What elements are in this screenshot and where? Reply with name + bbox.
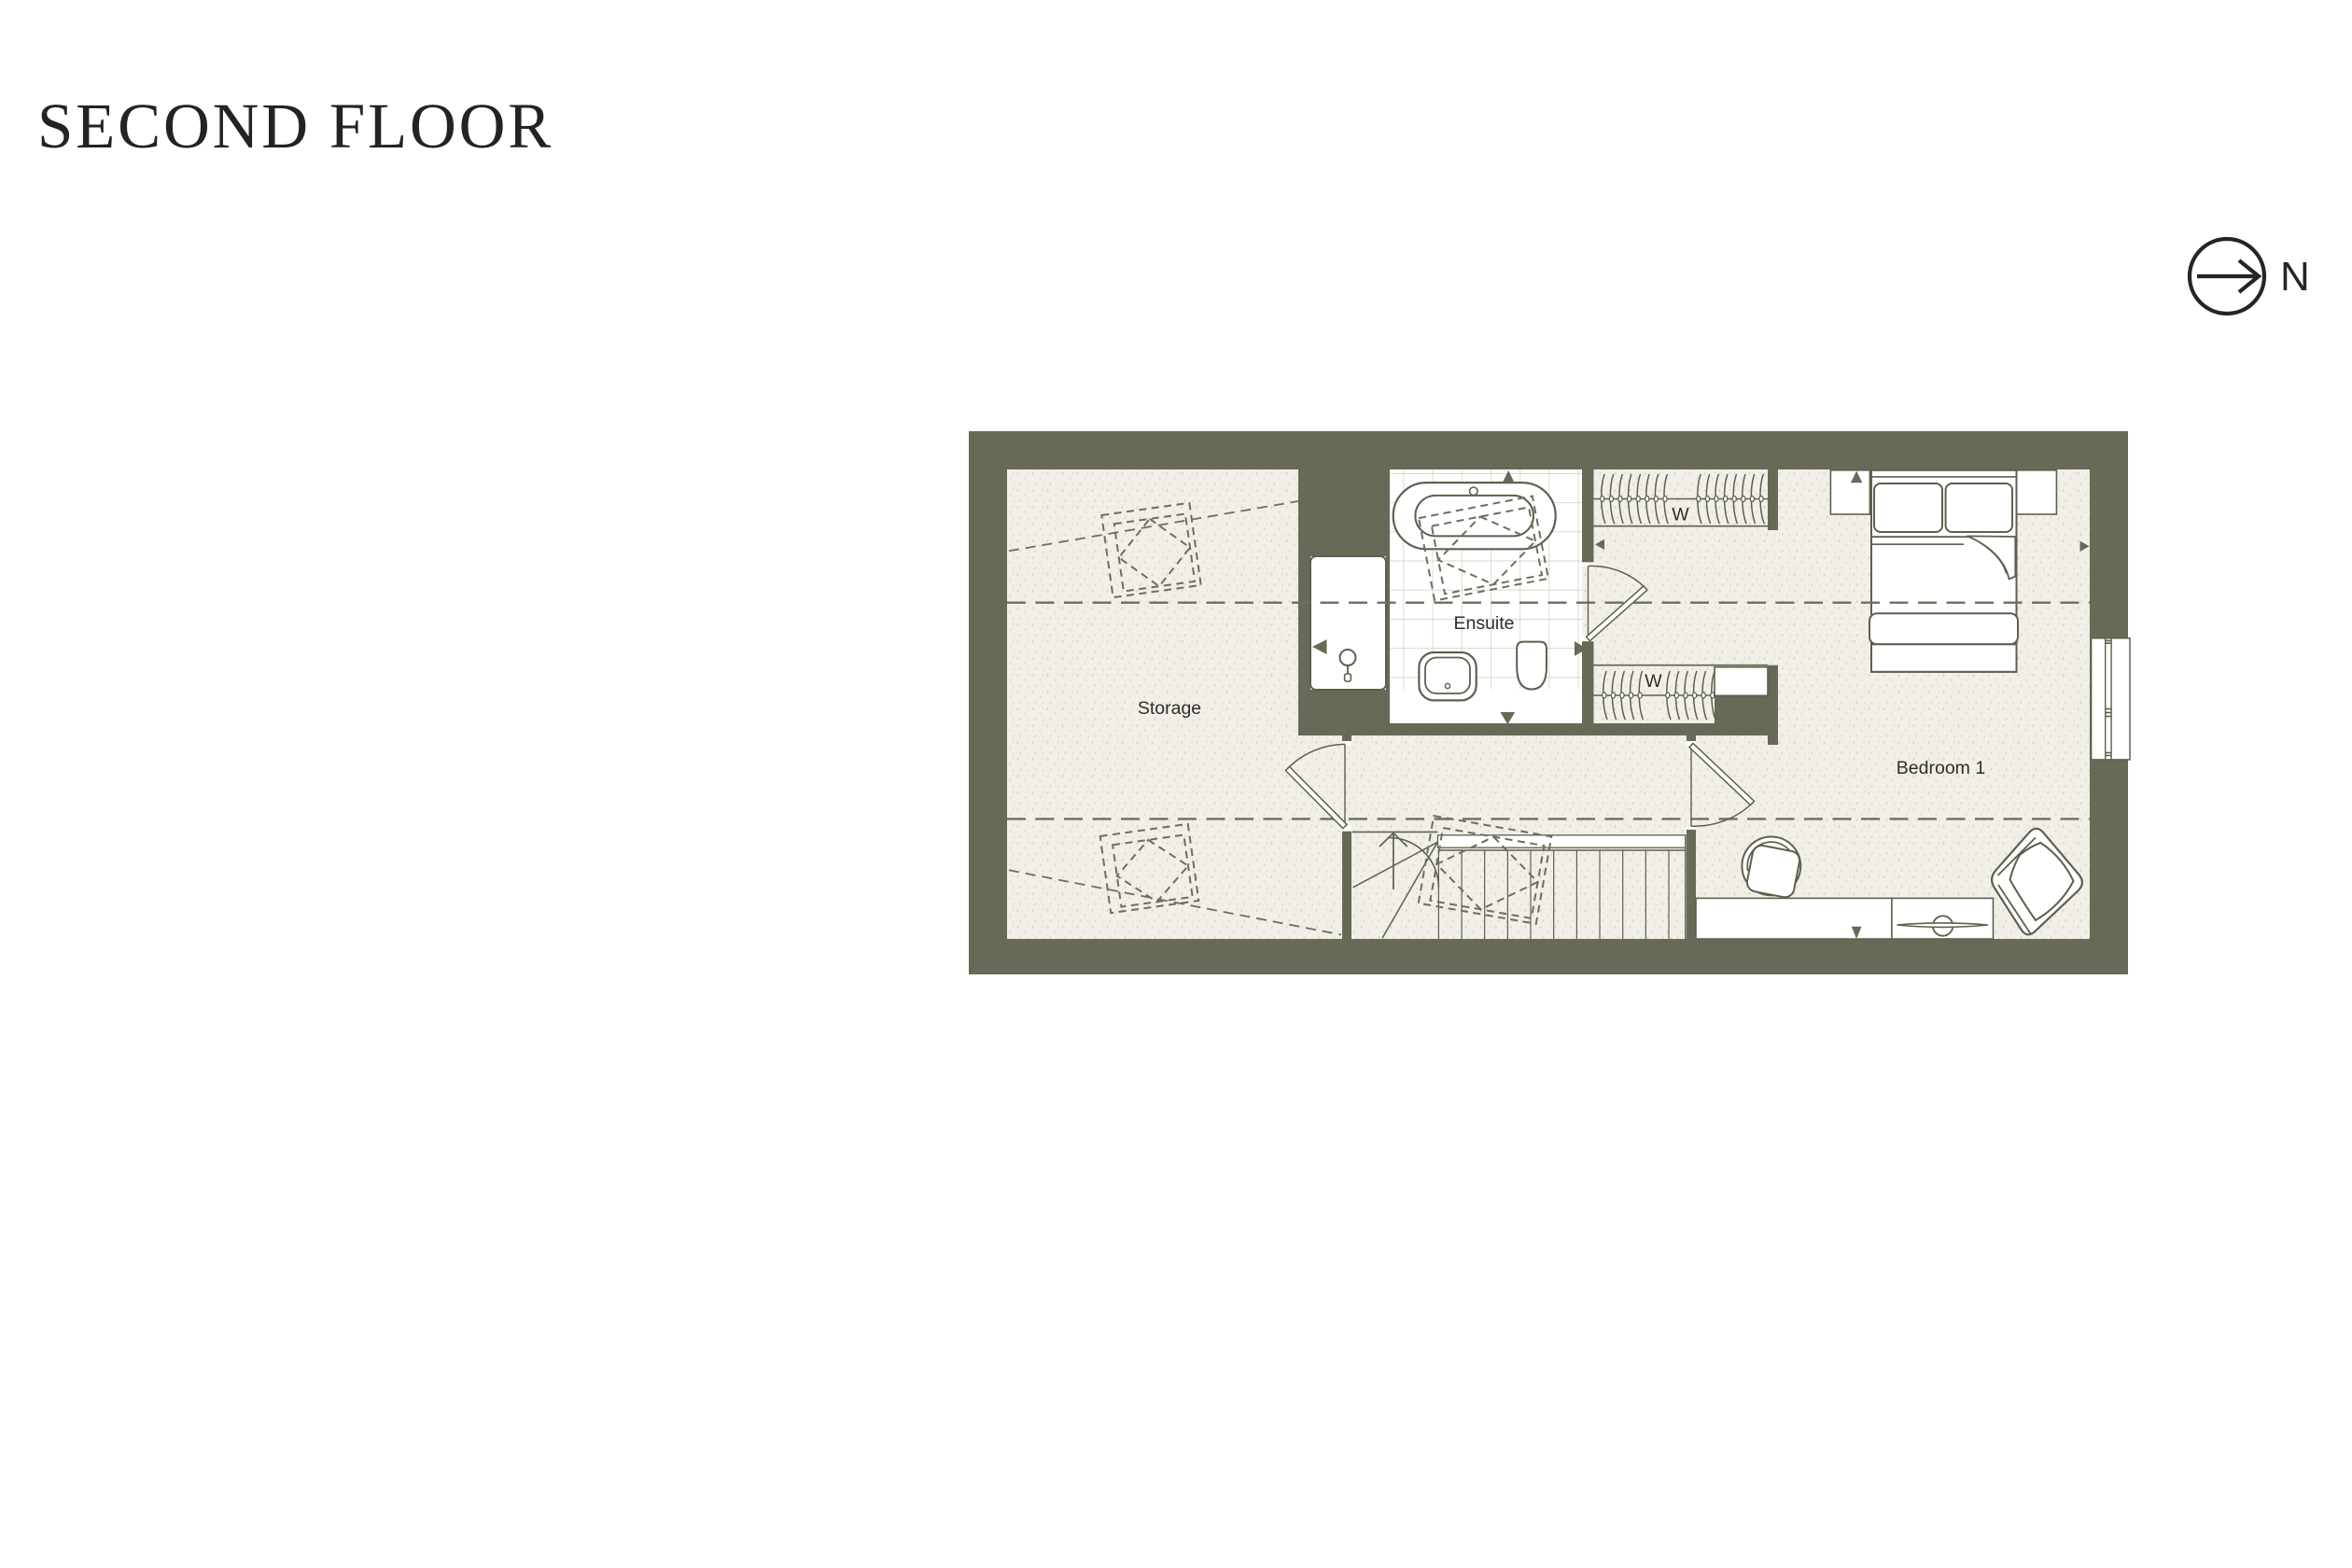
svg-text:W: W [1672,505,1689,525]
svg-text:Storage: Storage [1138,698,1201,719]
svg-text:N: N [2280,254,2310,300]
svg-text:Ensuite: Ensuite [1453,613,1514,634]
svg-text:Bedroom 1: Bedroom 1 [1897,758,1985,778]
svg-text:W: W [1645,671,1662,692]
